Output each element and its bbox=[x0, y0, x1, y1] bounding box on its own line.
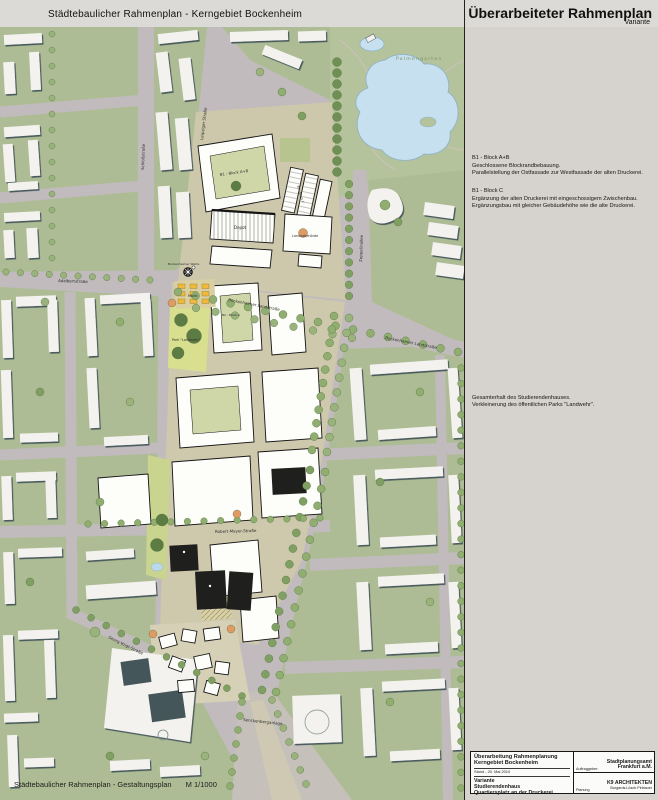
planner-name-line1: K9 ARCHITEKTEN bbox=[607, 780, 652, 786]
tree-icon bbox=[333, 135, 342, 144]
tree-icon bbox=[3, 269, 9, 275]
tree-icon bbox=[333, 69, 342, 78]
tree-icon bbox=[133, 638, 140, 645]
label-markt: Markt bbox=[188, 294, 198, 298]
tree-icon bbox=[261, 670, 269, 678]
planner-row: Planung K9 ARCHITEKTEN Borgards.Lösch.Pi… bbox=[574, 773, 654, 793]
annotation-line: Ergänzung der alten Druckerei mit einges… bbox=[472, 196, 654, 203]
tree-icon bbox=[303, 781, 310, 788]
planner-name-line2: Borgards.Lösch.Piribauer bbox=[610, 786, 652, 790]
tree-icon bbox=[49, 79, 55, 85]
tree-icon bbox=[272, 623, 280, 631]
tree-icon bbox=[426, 598, 434, 606]
title-block-left: Überarbeitung Rahmenplanung Kerngebiet B… bbox=[471, 752, 574, 793]
tree-icon bbox=[303, 482, 311, 490]
tree-icon bbox=[321, 468, 329, 476]
tree-icon bbox=[323, 352, 331, 360]
tree-icon bbox=[317, 485, 325, 493]
tree-icon bbox=[26, 578, 34, 586]
tree-icon bbox=[46, 271, 52, 277]
variant-subtitle: Variante bbox=[624, 19, 650, 26]
tree-icon bbox=[338, 359, 346, 367]
tree-icon bbox=[297, 314, 305, 322]
annotation-title: B1 - Block C bbox=[472, 188, 654, 195]
label-depot: Depot bbox=[234, 225, 247, 230]
tree-icon bbox=[345, 259, 353, 267]
large-building-with-rotunda bbox=[292, 694, 342, 744]
tree-icon bbox=[49, 111, 55, 117]
tree-icon bbox=[118, 630, 125, 637]
tree-icon bbox=[308, 446, 316, 454]
tree-icon bbox=[251, 316, 259, 324]
tree-icon bbox=[49, 159, 55, 165]
tree-icon bbox=[292, 529, 300, 537]
tree-icon bbox=[258, 686, 266, 694]
map-footer-caption: Städtebaulicher Rahmenplan - Gestaltungs… bbox=[14, 780, 217, 789]
tree-icon bbox=[295, 587, 303, 595]
tree-icon bbox=[233, 510, 241, 518]
tree-icon bbox=[317, 392, 325, 400]
tree-icon bbox=[184, 518, 191, 525]
tree-icon bbox=[250, 516, 257, 523]
tree-icon bbox=[319, 379, 327, 387]
tree-icon bbox=[49, 175, 55, 181]
tree-icon bbox=[223, 685, 230, 692]
tree-icon bbox=[330, 403, 338, 411]
plan-sheet: Palmengarten Zeppelinallee Leipziger Str… bbox=[0, 0, 658, 800]
variant-topic-2: Quartiersplatz an der Druckerei bbox=[474, 791, 570, 797]
tree-icon bbox=[279, 311, 287, 319]
tree-icon bbox=[178, 661, 185, 668]
tree-icon bbox=[314, 318, 322, 326]
title-block: Überarbeitung Rahmenplanung Kerngebiet B… bbox=[470, 751, 655, 794]
annotation-line: Ergänzungsbau mit gleicher Gebäudehöhe w… bbox=[472, 203, 654, 210]
tree-icon bbox=[49, 63, 55, 69]
notes-panel: B1 - Block A+B Geschlossene Blockrandbeb… bbox=[465, 27, 658, 800]
tree-icon bbox=[239, 699, 246, 706]
footer-scale: M 1/1000 bbox=[186, 780, 217, 789]
tree-icon bbox=[267, 516, 274, 523]
label-palmengarten: Palmengarten bbox=[396, 56, 442, 62]
tree-icon bbox=[314, 502, 322, 510]
page-title: Städtebaulicher Rahmenplan - Kerngebiet … bbox=[48, 9, 302, 20]
tree-icon bbox=[335, 374, 343, 382]
tree-icon bbox=[175, 314, 188, 327]
palmengarten-pond bbox=[356, 54, 458, 160]
tree-icon bbox=[32, 270, 38, 276]
tree-icon bbox=[147, 277, 153, 283]
tree-icon bbox=[315, 406, 323, 414]
tree-icon bbox=[280, 654, 288, 662]
map-panel-divider bbox=[464, 0, 465, 800]
tree-icon bbox=[104, 274, 110, 280]
tree-icon bbox=[118, 275, 124, 281]
tree-icon bbox=[291, 753, 298, 760]
tree-icon bbox=[134, 519, 141, 526]
tree-icon bbox=[151, 539, 164, 552]
label-adalbertstrasse: Adalbertstraße bbox=[58, 278, 88, 284]
tree-icon bbox=[345, 292, 353, 300]
tree-icon bbox=[345, 191, 353, 199]
tree-icon bbox=[333, 102, 342, 111]
annotation-line: Geschlossene Blockrandbebauung. bbox=[472, 163, 654, 170]
tree-icon bbox=[345, 180, 353, 188]
tree-icon bbox=[328, 418, 336, 426]
tree-icon bbox=[256, 68, 264, 76]
tree-icon bbox=[376, 478, 384, 486]
tree-icon bbox=[278, 88, 286, 96]
tree-icon bbox=[333, 80, 342, 89]
tree-icon bbox=[345, 225, 353, 233]
tower-3 bbox=[227, 571, 254, 611]
tree-icon bbox=[217, 517, 224, 524]
tree-icon bbox=[49, 127, 55, 133]
tree-icon bbox=[343, 329, 351, 337]
tree-icon bbox=[132, 276, 138, 282]
tree-icon bbox=[275, 607, 283, 615]
tree-icon bbox=[333, 388, 341, 396]
tree-icon bbox=[328, 325, 336, 333]
tree-icon bbox=[333, 168, 342, 177]
tree-icon bbox=[168, 519, 175, 526]
tree-icon bbox=[148, 646, 155, 653]
tree-icon bbox=[231, 181, 241, 191]
tree-icon bbox=[85, 521, 92, 528]
tree-icon bbox=[201, 752, 209, 760]
client-row: Auftraggeber: Stadtplanungsamt Frankfurt… bbox=[574, 752, 654, 773]
tree-icon bbox=[149, 630, 157, 638]
tree-icon bbox=[49, 239, 55, 245]
tree-icon bbox=[286, 739, 293, 746]
tree-icon bbox=[36, 388, 44, 396]
tree-icon bbox=[49, 31, 55, 37]
tree-icon bbox=[437, 344, 445, 352]
tree-icon bbox=[49, 47, 55, 53]
tree-icon bbox=[306, 536, 314, 544]
city-plan-map: Palmengarten Zeppelinallee Leipziger Str… bbox=[0, 0, 465, 800]
tree-icon bbox=[287, 620, 295, 628]
tree-icon bbox=[126, 398, 134, 406]
tree-icon bbox=[49, 223, 55, 229]
tree-icon bbox=[231, 755, 238, 762]
tree-icon bbox=[89, 274, 95, 280]
tree-icon bbox=[235, 727, 242, 734]
tree-icon bbox=[174, 288, 182, 296]
tree-icon bbox=[333, 124, 342, 133]
tree-icon bbox=[168, 299, 176, 307]
planner-name: K9 ARCHITEKTEN Borgards.Lösch.Piribauer bbox=[607, 781, 652, 792]
tree-icon bbox=[17, 270, 23, 276]
label-bockenheimer-warte: Bockenheimer Warte bbox=[168, 262, 199, 266]
client-name: Stadtplanungsamt Frankfurt a.M. bbox=[607, 760, 652, 771]
tree-icon bbox=[193, 669, 200, 676]
tree-icon bbox=[326, 339, 334, 347]
title-block-right: Auftraggeber: Stadtplanungsamt Frankfurt… bbox=[574, 752, 654, 793]
tree-icon bbox=[394, 218, 402, 226]
annotation-line: Gesamterhalt des Studierendenhauses. bbox=[472, 395, 654, 402]
annotation-line: Verkleinerung des öffentlichen Parks "La… bbox=[472, 402, 654, 409]
project-title-line2: Kerngebiet Bockenheim bbox=[474, 760, 570, 766]
tree-icon bbox=[163, 653, 170, 660]
tree-icon bbox=[265, 655, 273, 663]
tree-icon bbox=[333, 146, 342, 155]
tree-icon bbox=[268, 639, 276, 647]
tree-icon bbox=[227, 625, 235, 633]
tree-icon bbox=[106, 752, 114, 760]
tree-icon bbox=[291, 603, 299, 611]
annotation-studierendenhaus: Gesamterhalt des Studierendenhauses. Ver… bbox=[472, 395, 654, 409]
tree-icon bbox=[345, 314, 353, 322]
annotation-block-b1ab: B1 - Block A+B Geschlossene Blockrandbeb… bbox=[472, 155, 654, 176]
annotation-title: B1 - Block A+B bbox=[472, 155, 654, 162]
planner-label: Planung bbox=[576, 788, 590, 792]
tree-icon bbox=[201, 518, 208, 525]
tree-icon bbox=[330, 312, 338, 320]
tree-icon bbox=[229, 769, 236, 776]
tree-icon bbox=[274, 711, 281, 718]
tree-icon bbox=[41, 298, 49, 306]
tree-icon bbox=[289, 545, 297, 553]
tree-icon bbox=[340, 344, 348, 352]
tree-icon bbox=[367, 329, 375, 337]
client-label: Auftraggeber: bbox=[576, 767, 598, 771]
tree-icon bbox=[90, 627, 100, 637]
footer-label: Städtebaulicher Rahmenplan - Gestaltungs… bbox=[14, 780, 172, 789]
tree-icon bbox=[290, 323, 298, 331]
tree-icon bbox=[116, 318, 124, 326]
tree-icon bbox=[49, 191, 55, 197]
tree-icon bbox=[49, 207, 55, 213]
tree-icon bbox=[49, 143, 55, 149]
tower-2 bbox=[195, 570, 227, 610]
tree-icon bbox=[103, 622, 110, 629]
tree-icon bbox=[212, 308, 220, 316]
tree-icon bbox=[309, 327, 317, 335]
tree-icon bbox=[208, 677, 215, 684]
tree-icon bbox=[306, 466, 314, 474]
tower-1 bbox=[169, 544, 198, 571]
tree-icon bbox=[333, 91, 342, 100]
tree-icon bbox=[333, 157, 342, 166]
tree-icon bbox=[172, 347, 184, 359]
tree-icon bbox=[269, 697, 276, 704]
tree-icon bbox=[156, 514, 168, 526]
tree-icon bbox=[454, 348, 462, 356]
tree-icon bbox=[325, 433, 333, 441]
tree-icon bbox=[192, 304, 200, 312]
tree-icon bbox=[88, 614, 95, 621]
tree-icon bbox=[345, 203, 353, 211]
tree-icon bbox=[380, 200, 390, 210]
tree-icon bbox=[345, 214, 353, 222]
tree-icon bbox=[282, 576, 290, 584]
tree-icon bbox=[73, 607, 80, 614]
tree-icon bbox=[317, 515, 324, 522]
tree-icon bbox=[270, 319, 278, 327]
annotation-line: Parallelstellung der Ostfassade zur West… bbox=[472, 170, 654, 177]
tree-icon bbox=[49, 255, 55, 261]
tree-icon bbox=[118, 520, 125, 527]
annotation-block-b1c: B1 - Block C Ergänzung der alten Drucker… bbox=[472, 188, 654, 209]
tree-icon bbox=[310, 519, 318, 527]
tree-icon bbox=[333, 113, 342, 122]
tree-icon bbox=[386, 698, 394, 706]
tree-icon bbox=[312, 419, 320, 427]
plan-date: Stand - 20. Mai 2010 bbox=[474, 770, 570, 774]
label-park-landwehr: Park "Landwehr" bbox=[172, 338, 201, 342]
tree-icon bbox=[323, 448, 331, 456]
tree-icon bbox=[297, 767, 304, 774]
tree-icon bbox=[310, 433, 318, 441]
tree-icon bbox=[298, 570, 306, 578]
label-block-b2a: B2 - Block A bbox=[222, 313, 241, 317]
tree-icon bbox=[321, 366, 329, 374]
label-landesbehoerde: Landesbehörde bbox=[292, 234, 318, 238]
tree-icon bbox=[233, 741, 240, 748]
tree-icon bbox=[285, 560, 293, 568]
tree-icon bbox=[96, 498, 104, 506]
tree-icon bbox=[272, 688, 280, 696]
tree-icon bbox=[416, 388, 424, 396]
client-name-line2: Frankfurt a.M. bbox=[618, 764, 652, 770]
sheet-header: Städtebaulicher Rahmenplan - Kerngebiet … bbox=[0, 0, 658, 27]
tree-icon bbox=[300, 515, 307, 522]
tree-icon bbox=[101, 520, 108, 527]
tree-icon bbox=[283, 637, 291, 645]
tree-icon bbox=[333, 58, 342, 67]
tree-icon bbox=[284, 516, 291, 523]
label-schlossstrasse: Schloßstraße bbox=[140, 143, 146, 170]
tree-icon bbox=[345, 281, 353, 289]
tree-icon bbox=[302, 553, 310, 561]
tree-icon bbox=[345, 270, 353, 278]
tree-icon bbox=[345, 236, 353, 244]
tree-icon bbox=[298, 112, 306, 120]
label-zeppelinallee: Zeppelinallee bbox=[358, 234, 364, 262]
tree-icon bbox=[299, 497, 307, 505]
tree-icon bbox=[279, 592, 287, 600]
tree-icon bbox=[49, 95, 55, 101]
tree-icon bbox=[209, 296, 217, 304]
tree-icon bbox=[345, 247, 353, 255]
tree-icon bbox=[276, 671, 284, 679]
tree-icon bbox=[227, 783, 234, 790]
